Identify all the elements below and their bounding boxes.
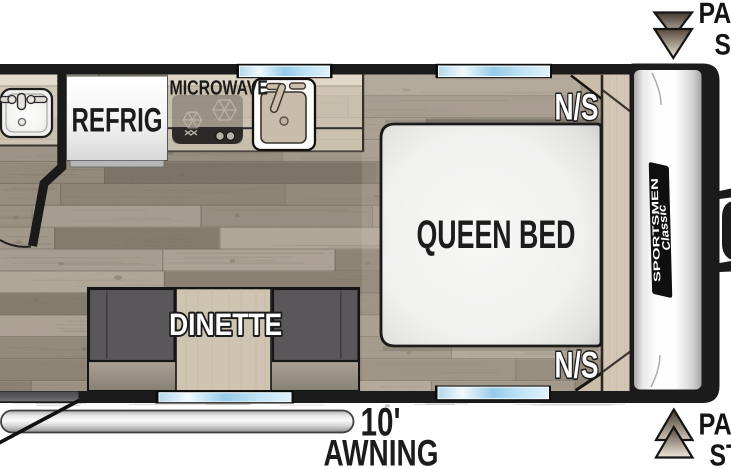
- svg-text:STORAGE: STORAGE: [715, 29, 731, 62]
- svg-text:QUEEN BED: QUEEN BED: [417, 213, 576, 257]
- svg-text:PASS: PASS: [699, 0, 731, 30]
- svg-text:N/S: N/S: [555, 345, 599, 386]
- svg-text:AWNING: AWNING: [324, 433, 439, 469]
- svg-text:MICROWAVE: MICROWAVE: [170, 77, 269, 100]
- svg-text:PASS: PASS: [699, 408, 731, 442]
- svg-text:N/S: N/S: [555, 87, 599, 128]
- svg-text:STORAGE: STORAGE: [710, 439, 731, 469]
- svg-text:REFRIG: REFRIG: [72, 102, 163, 140]
- svg-text:DINETTE: DINETTE: [169, 307, 282, 342]
